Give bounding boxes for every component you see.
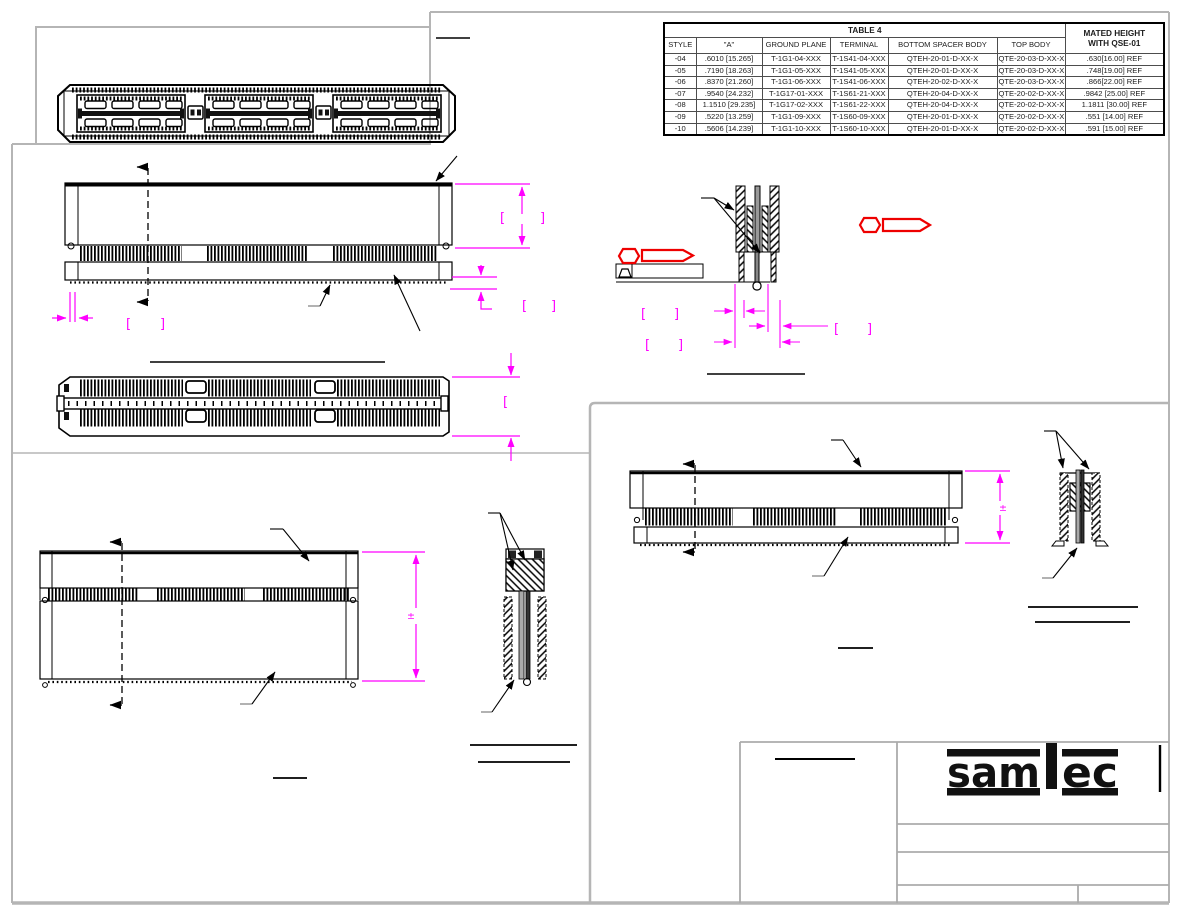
banner-flag-icon (883, 219, 930, 231)
table-body: -04.6010 [15.265]T-1G1-04-XXXT-1S41-04-X… (664, 54, 1164, 136)
table-cell: QTE-20-02-D-XX-X (997, 100, 1065, 112)
mated-height-line1: MATED HEIGHT (1067, 29, 1163, 38)
table-cell: T-1S41-04-XXX (830, 54, 888, 66)
section-cut-line (110, 542, 122, 705)
table-row: -081.1510 [29.235]T-1G17-02-XXXT-1S61-22… (664, 100, 1164, 112)
table-cell: QTEH-20-04-D-XX-X (888, 100, 997, 112)
table-cell: .866[22.00] REF (1065, 77, 1164, 89)
table-cell: .551 [14.00] REF (1065, 111, 1164, 123)
leader-detail-top (1044, 431, 1089, 469)
logo-text-sam: sam (947, 748, 1040, 797)
table-title: TABLE 4 (664, 23, 1065, 38)
col-header-a: "A" (696, 38, 762, 54)
table-cell: T-1S61-22-XXX (830, 100, 888, 112)
table-cell: -04 (664, 54, 696, 66)
table-row: -10.5606 [14.239]T-1G1-10-XXXT-1S60-10-X… (664, 123, 1164, 135)
top-plan-view (58, 38, 470, 142)
col-header-terminal: TERMINAL (830, 38, 888, 54)
dimensions-lower-left: ± (362, 552, 425, 681)
table-cell: .9540 [24.232] (696, 88, 762, 100)
table-cell: T-1G17-01-XXX (762, 88, 830, 100)
dimensions-bottom-view: [ (452, 353, 520, 461)
dimensions-section-view: [ ] [ ] [ ] (641, 284, 872, 353)
table-cell: 1.1510 [29.235] (696, 100, 762, 112)
table-cell: .7190 [18.263] (696, 65, 762, 77)
table-cell: T-1G1-04-XXX (762, 54, 830, 66)
dim-bracket: ] (551, 299, 556, 314)
leader-top-body (831, 440, 861, 467)
table-row: -04.6010 [15.265]T-1G1-04-XXXT-1S41-04-X… (664, 54, 1164, 66)
table-cell: .5606 [14.239] (696, 123, 762, 135)
table-cell: T-1G1-06-XXX (762, 77, 830, 89)
dim-bracket: ] (540, 211, 545, 226)
leader-top-body (270, 529, 309, 561)
section-detail-lower-left (481, 513, 546, 712)
col-header-ground-plane: GROUND PLANE (762, 38, 830, 54)
table-cell: T-1S60-10-XXX (830, 123, 888, 135)
dim-bracket: ] (678, 338, 683, 353)
hex-flag-icon (860, 218, 880, 232)
table-cell: QTE-20-02-D-XX-X (997, 111, 1065, 123)
mated-side-view-lower-left (40, 529, 577, 778)
table-cell: -08 (664, 100, 696, 112)
table-cell: -09 (664, 111, 696, 123)
section-detail-lower-right (1028, 431, 1138, 622)
leader-bottom-body (308, 285, 330, 306)
table-row: -07.9540 [24.232]T-1G17-01-XXXT-1S61-21-… (664, 88, 1164, 100)
dim-bracket: [ (500, 211, 505, 226)
table-row: -05.7190 [18.263]T-1G1-05-XXXT-1S41-05-X… (664, 65, 1164, 77)
col-header-mated-height: MATED HEIGHT WITH QSE-01 (1065, 23, 1164, 54)
table-cell: .748[19.00] REF (1065, 65, 1164, 77)
table-cell: T-1S60-09-XXX (830, 111, 888, 123)
mated-height-line2: WITH QSE-01 (1067, 39, 1163, 48)
table-cell: QTE-20-02-D-XX-X (997, 88, 1065, 100)
leader-detail-bottom (481, 680, 514, 712)
leader-spacer (394, 275, 420, 331)
drawing-linework: [ ] [ ] [ ] (0, 0, 1188, 918)
table-cell: .9842 [25.00] REF (1065, 88, 1164, 100)
table-cell: .6010 [15.265] (696, 54, 762, 66)
dim-bracket: [ (834, 322, 839, 337)
col-header-style: STYLE (664, 38, 696, 54)
table-cell: QTEH-20-04-D-XX-X (888, 88, 997, 100)
col-header-top-body: TOP BODY (997, 38, 1065, 54)
dim-bracket: [ (522, 299, 527, 314)
table-cell: T-1G1-05-XXX (762, 65, 830, 77)
pad-segment (333, 95, 441, 132)
table-cell: QTEH-20-01-D-XX-X (888, 54, 997, 66)
dim-bracket: ] (674, 307, 679, 322)
leader-top-body (436, 156, 457, 181)
bottom-solder-view (57, 362, 449, 436)
drawing-sheet: [ ] [ ] [ ] (0, 0, 1188, 918)
dimensions-upper-view: [ ] [ ] [ ] (52, 184, 556, 332)
table-row: -09.5220 [13.259]T-1G1-09-XXXT-1S60-09-X… (664, 111, 1164, 123)
table-cell: -07 (664, 88, 696, 100)
table-cell: .591 [15.00] REF (1065, 123, 1164, 135)
logo-text-ec: ec (1062, 748, 1118, 797)
dimensions-lower-right: ± (965, 471, 1010, 543)
dim-bracket: ] (160, 317, 165, 332)
pad-segment (77, 95, 185, 132)
table-cell: T-1G17-02-XXX (762, 100, 830, 112)
table-cell: .630[16.00] REF (1065, 54, 1164, 66)
table-cell: T-1G1-10-XXX (762, 123, 830, 135)
banner-flag-icon (642, 250, 693, 261)
table-cell: 1.1811 [30.00] REF (1065, 100, 1164, 112)
mated-side-view-lower-right (630, 440, 962, 648)
table-cell: .5220 [13.259] (696, 111, 762, 123)
table-row: -06.8370 [21.260]T-1G1-06-XXXT-1S41-06-X… (664, 77, 1164, 89)
table-cell: QTE-20-03-D-XX-X (997, 54, 1065, 66)
samtec-logo: sam ec (947, 743, 1118, 797)
plus-minus-symbol: ± (407, 611, 415, 622)
table-cell: T-1S41-06-XXX (830, 77, 888, 89)
table-cell: -05 (664, 65, 696, 77)
table-cell: QTEH-20-01-D-XX-X (888, 111, 997, 123)
table-cell: T-1S41-05-XXX (830, 65, 888, 77)
leader-detail-bottom (1042, 548, 1077, 578)
table-cell: QTEH-20-02-D-XX-X (888, 77, 997, 89)
table-cell: QTE-20-02-D-XX-X (997, 123, 1065, 135)
leader-bottom-body (240, 672, 275, 704)
dim-bracket: ] (867, 322, 872, 337)
table-cell: QTE-20-03-D-XX-X (997, 65, 1065, 77)
table-cell: T-1S61-21-XXX (830, 88, 888, 100)
table-cell: -06 (664, 77, 696, 89)
plus-minus-symbol: ± (999, 503, 1007, 514)
dim-bracket: [ (641, 307, 646, 322)
dim-bracket: [ (645, 338, 650, 353)
table-cell: QTEH-20-01-D-XX-X (888, 123, 997, 135)
table-cell: QTEH-20-01-D-XX-X (888, 65, 997, 77)
dim-bracket: [ (503, 395, 508, 410)
hex-flag-icon (619, 249, 639, 263)
col-header-bottom-spacer-body: BOTTOM SPACER BODY (888, 38, 997, 54)
table-4: TABLE 4 MATED HEIGHT WITH QSE-01 STYLE "… (663, 22, 1165, 136)
table-cell: -10 (664, 123, 696, 135)
dim-bracket: [ (126, 317, 131, 332)
table-cell: T-1G1-09-XXX (762, 111, 830, 123)
logo-t-stem (1046, 743, 1057, 789)
table-cell: .8370 [21.260] (696, 77, 762, 89)
table-cell: QTE-20-03-D-XX-X (997, 77, 1065, 89)
mated-side-view-upper (65, 156, 457, 331)
pad-segment (205, 95, 313, 132)
